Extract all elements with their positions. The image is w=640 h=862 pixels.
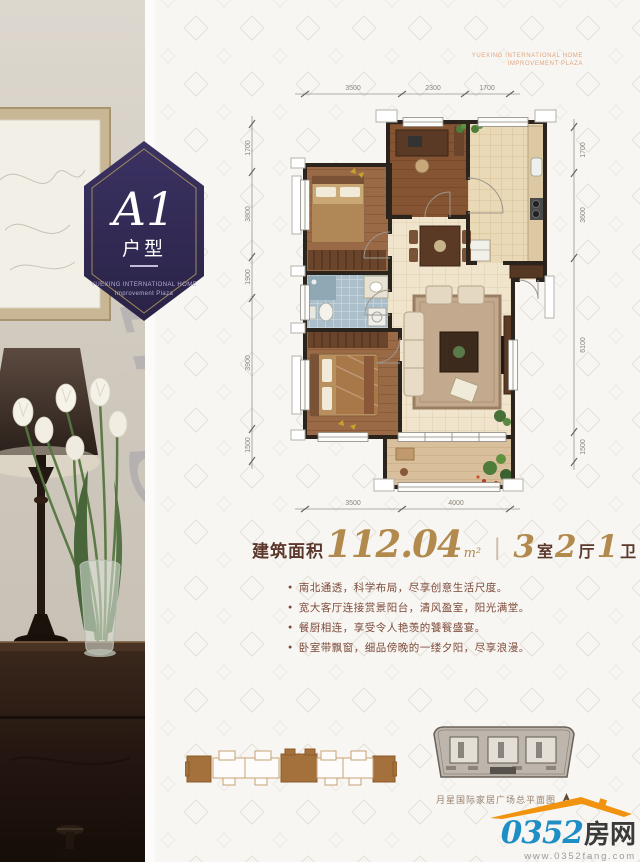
area-divider: | bbox=[494, 534, 500, 562]
portal-logo: 0352 房网 www.0352fang.com bbox=[486, 795, 636, 862]
balcony-floor bbox=[385, 437, 513, 487]
dim-bottom-2: 4000 bbox=[448, 500, 464, 507]
logo-number: 0352 bbox=[501, 818, 583, 849]
logo-name: 房网 bbox=[584, 821, 636, 847]
dim-right-2: 3600 bbox=[580, 207, 587, 223]
logo-text-row: 0352 房网 bbox=[486, 818, 636, 849]
feature-text: 卧室带飘窗，细品傍晚的一缕夕阳，尽享浪漫。 bbox=[299, 640, 530, 655]
armchair bbox=[458, 286, 484, 304]
armchair bbox=[426, 286, 452, 304]
room-count-livingrooms: 2 bbox=[555, 529, 577, 565]
shoe-cabinet bbox=[510, 265, 544, 278]
glass-vase bbox=[80, 560, 120, 655]
dim-left-1: 1700 bbox=[245, 140, 252, 156]
washer bbox=[368, 308, 386, 326]
badge-org-line1: YUEXING INTERNATIONAL HOME bbox=[91, 282, 197, 288]
tv bbox=[501, 336, 504, 374]
dim-top-2: 2300 bbox=[425, 85, 441, 92]
site-entrance-band bbox=[490, 767, 516, 774]
room-type-bedrooms: 室 bbox=[537, 538, 553, 562]
bullet-icon: ● bbox=[288, 584, 293, 591]
feature-text: 南北通透，科学布局，尽享创意生活尺度。 bbox=[299, 580, 508, 595]
feature-text: 餐厨相连，享受令人艳羡的饕餮盛宴。 bbox=[299, 620, 486, 635]
badge-unit-code: A1 bbox=[109, 182, 176, 236]
bullet-icon: ● bbox=[288, 604, 293, 611]
balcony-table bbox=[396, 448, 414, 460]
room-type-bathrooms: 卫 bbox=[620, 538, 636, 562]
room-count-bathrooms: 1 bbox=[597, 529, 619, 565]
balcony-plant bbox=[483, 461, 497, 475]
bullet-icon: ● bbox=[288, 644, 293, 651]
dim-left-5: 1500 bbox=[245, 437, 252, 453]
dim-right-4: 1500 bbox=[580, 439, 587, 455]
dim-left-2: 3800 bbox=[245, 206, 252, 222]
unit-badge: A1 户型 YUEXING INTERNATIONAL HOME Improve… bbox=[84, 141, 204, 321]
feature-item: ●南北通透，科学布局，尽享创意生活尺度。 bbox=[288, 577, 628, 597]
badge-type-label: 户型 bbox=[122, 238, 166, 260]
feature-item: ●宽大客厅连接赏景阳台，清风盈室，阳光满堂。 bbox=[288, 597, 628, 617]
feature-text: 宽大客厅连接赏景阳台，清风盈室，阳光满堂。 bbox=[299, 600, 530, 615]
flyer-page: ing A1 户型 YUEXING INTERNATIONAL HOME Imp… bbox=[0, 0, 640, 862]
room-count-bedrooms: 3 bbox=[513, 529, 535, 565]
dining-chair bbox=[409, 248, 418, 262]
logo-url: www.0352fang.com bbox=[486, 851, 636, 862]
toilet bbox=[319, 303, 333, 321]
area-unit: m² bbox=[464, 546, 482, 561]
dim-left-4: 3900 bbox=[245, 355, 252, 371]
room-type-livingrooms: 厅 bbox=[579, 538, 595, 562]
site-plan-map bbox=[428, 724, 580, 784]
area-headline: 建筑面积112.04m²|3室2厅1卫 bbox=[252, 522, 624, 568]
dim-top-1: 3500 bbox=[345, 85, 361, 92]
dining-chair bbox=[409, 230, 418, 244]
dim-left-3: 1900 bbox=[245, 269, 252, 285]
area-value: 112.04 bbox=[326, 522, 462, 566]
plan-watermark: YUEXING INTERNATIONAL HOME IMPROVEMENT P… bbox=[472, 52, 583, 68]
badge-org-line2: Improvement Plaza bbox=[115, 291, 174, 297]
dim-top-3: 1700 bbox=[479, 85, 495, 92]
dim-bottom-1: 3500 bbox=[345, 500, 361, 507]
dim-right-3: 6100 bbox=[580, 337, 587, 353]
interior-photo: ing bbox=[0, 0, 145, 862]
shower bbox=[308, 276, 336, 300]
plan-watermark-line2: IMPROVEMENT PLAZA bbox=[472, 60, 583, 68]
area-label: 建筑面积 bbox=[252, 537, 324, 562]
photo-gutter bbox=[145, 0, 155, 862]
wardrobe-master bbox=[308, 332, 388, 348]
desk-chair bbox=[415, 159, 429, 173]
site-plan-block: 月星国际家居广场总平面图 bbox=[428, 724, 580, 806]
floor-plan: 3500 2300 1700 3500 4000 1700 3800 1900 … bbox=[238, 80, 593, 516]
kitchen-counter bbox=[528, 126, 545, 262]
feature-item: ●卧室带飘窗，细品傍晚的一缕夕阳，尽享浪漫。 bbox=[288, 637, 628, 657]
feature-item: ●餐厨相连，享受令人艳羡的饕餮盛宴。 bbox=[288, 617, 628, 637]
badge-divider bbox=[130, 265, 158, 267]
building-key-plan bbox=[185, 746, 397, 794]
wardrobe2 bbox=[308, 250, 386, 270]
dim-right-1: 1700 bbox=[580, 142, 587, 158]
bullet-icon: ● bbox=[288, 624, 293, 631]
sofa bbox=[404, 312, 424, 396]
sink bbox=[531, 158, 542, 176]
fridge bbox=[470, 240, 490, 261]
feature-list: ●南北通透，科学布局，尽享创意生活尺度。 ●宽大客厅连接赏景阳台，清风盈室，阳光… bbox=[288, 577, 628, 657]
plan-watermark-line1: YUEXING INTERNATIONAL HOME bbox=[472, 52, 583, 60]
